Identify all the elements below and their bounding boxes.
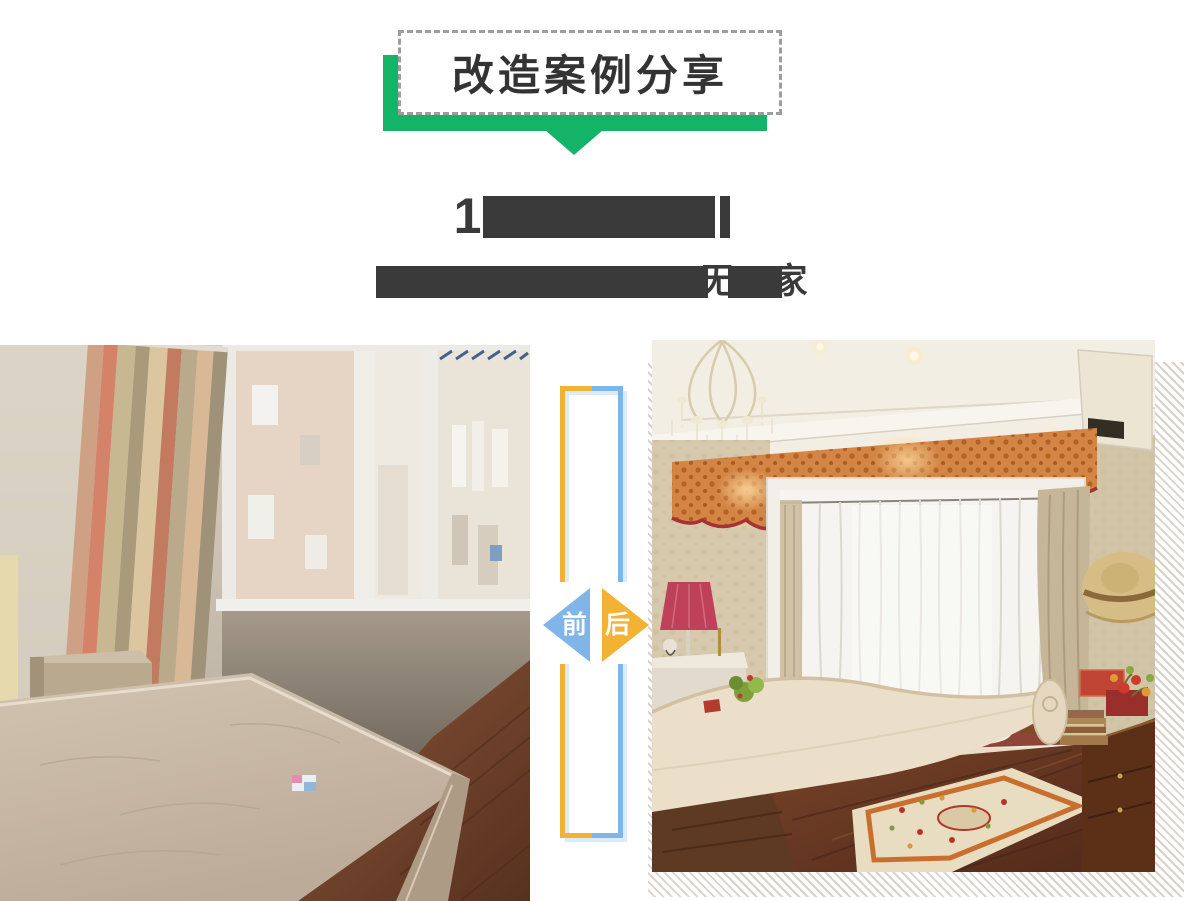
- page-title: 改造案例分享: [452, 42, 728, 103]
- banner-pointer-triangle: [545, 130, 603, 155]
- after-photo-illustration: [652, 340, 1155, 872]
- after-photo: [652, 340, 1155, 872]
- headline-fragment: 1: [454, 194, 482, 238]
- divider-frame-bottom-yellow: [560, 833, 592, 838]
- redaction-bar: [376, 266, 708, 298]
- banner-accent-bottom-bar: [383, 115, 767, 131]
- divider-frame-top-yellow: [560, 386, 592, 391]
- banner-title-box: 改造案例分享: [398, 30, 782, 115]
- redacted-headline: 1: [0, 194, 1184, 238]
- redaction-bar: [720, 196, 730, 238]
- redaction-bar: [483, 196, 715, 238]
- redacted-subtitle: 无 家: [0, 266, 1184, 298]
- before-photo-illustration: [0, 345, 530, 901]
- redaction-bar: [728, 266, 782, 298]
- article-page: 改造案例分享 1 无 家: [0, 0, 1184, 901]
- window: [216, 345, 530, 611]
- before-photo: [0, 345, 530, 901]
